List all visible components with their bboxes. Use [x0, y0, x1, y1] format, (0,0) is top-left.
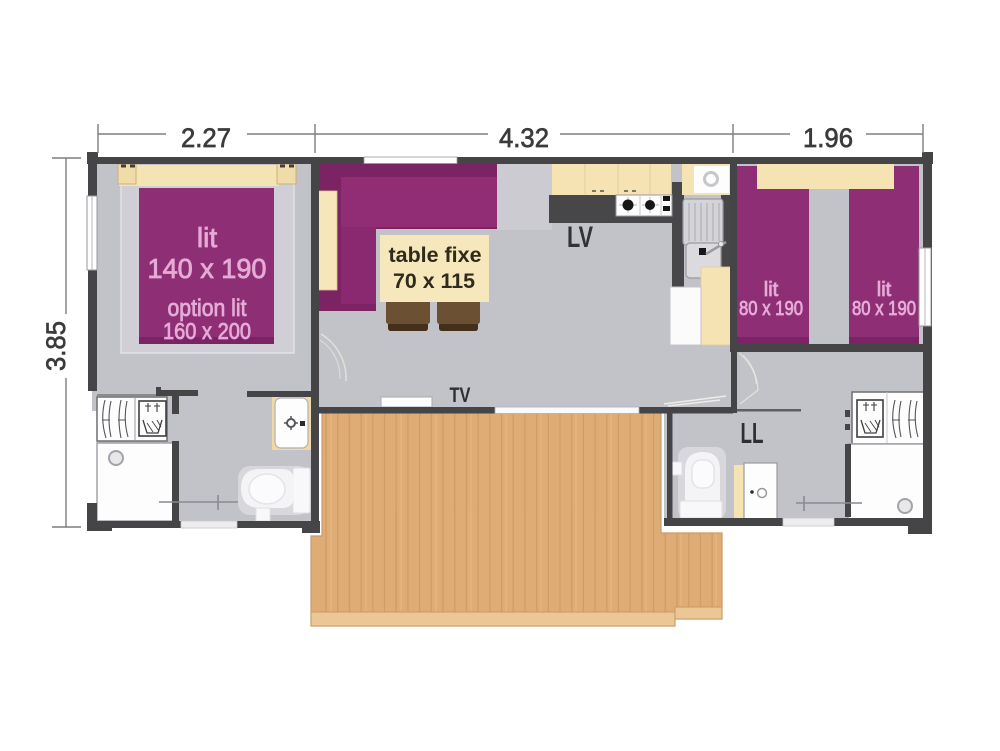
- svg-text:160 x 200: 160 x 200: [163, 318, 251, 344]
- svg-text:3.85: 3.85: [41, 321, 71, 371]
- svg-text:table fixe: table fixe: [389, 243, 482, 267]
- svg-text:1.96: 1.96: [803, 123, 853, 153]
- svg-text:LV: LV: [567, 221, 593, 254]
- svg-text:140 x 190: 140 x 190: [148, 253, 267, 284]
- svg-text:4.32: 4.32: [499, 123, 549, 153]
- svg-text:lit: lit: [197, 222, 217, 253]
- svg-text:TV: TV: [450, 384, 471, 407]
- svg-text:70 x 115: 70 x 115: [393, 269, 475, 293]
- svg-text:2.27: 2.27: [181, 123, 231, 153]
- svg-text:80 x 190: 80 x 190: [739, 298, 803, 320]
- svg-text:LL: LL: [741, 418, 764, 450]
- svg-text:80 x 190: 80 x 190: [852, 298, 916, 320]
